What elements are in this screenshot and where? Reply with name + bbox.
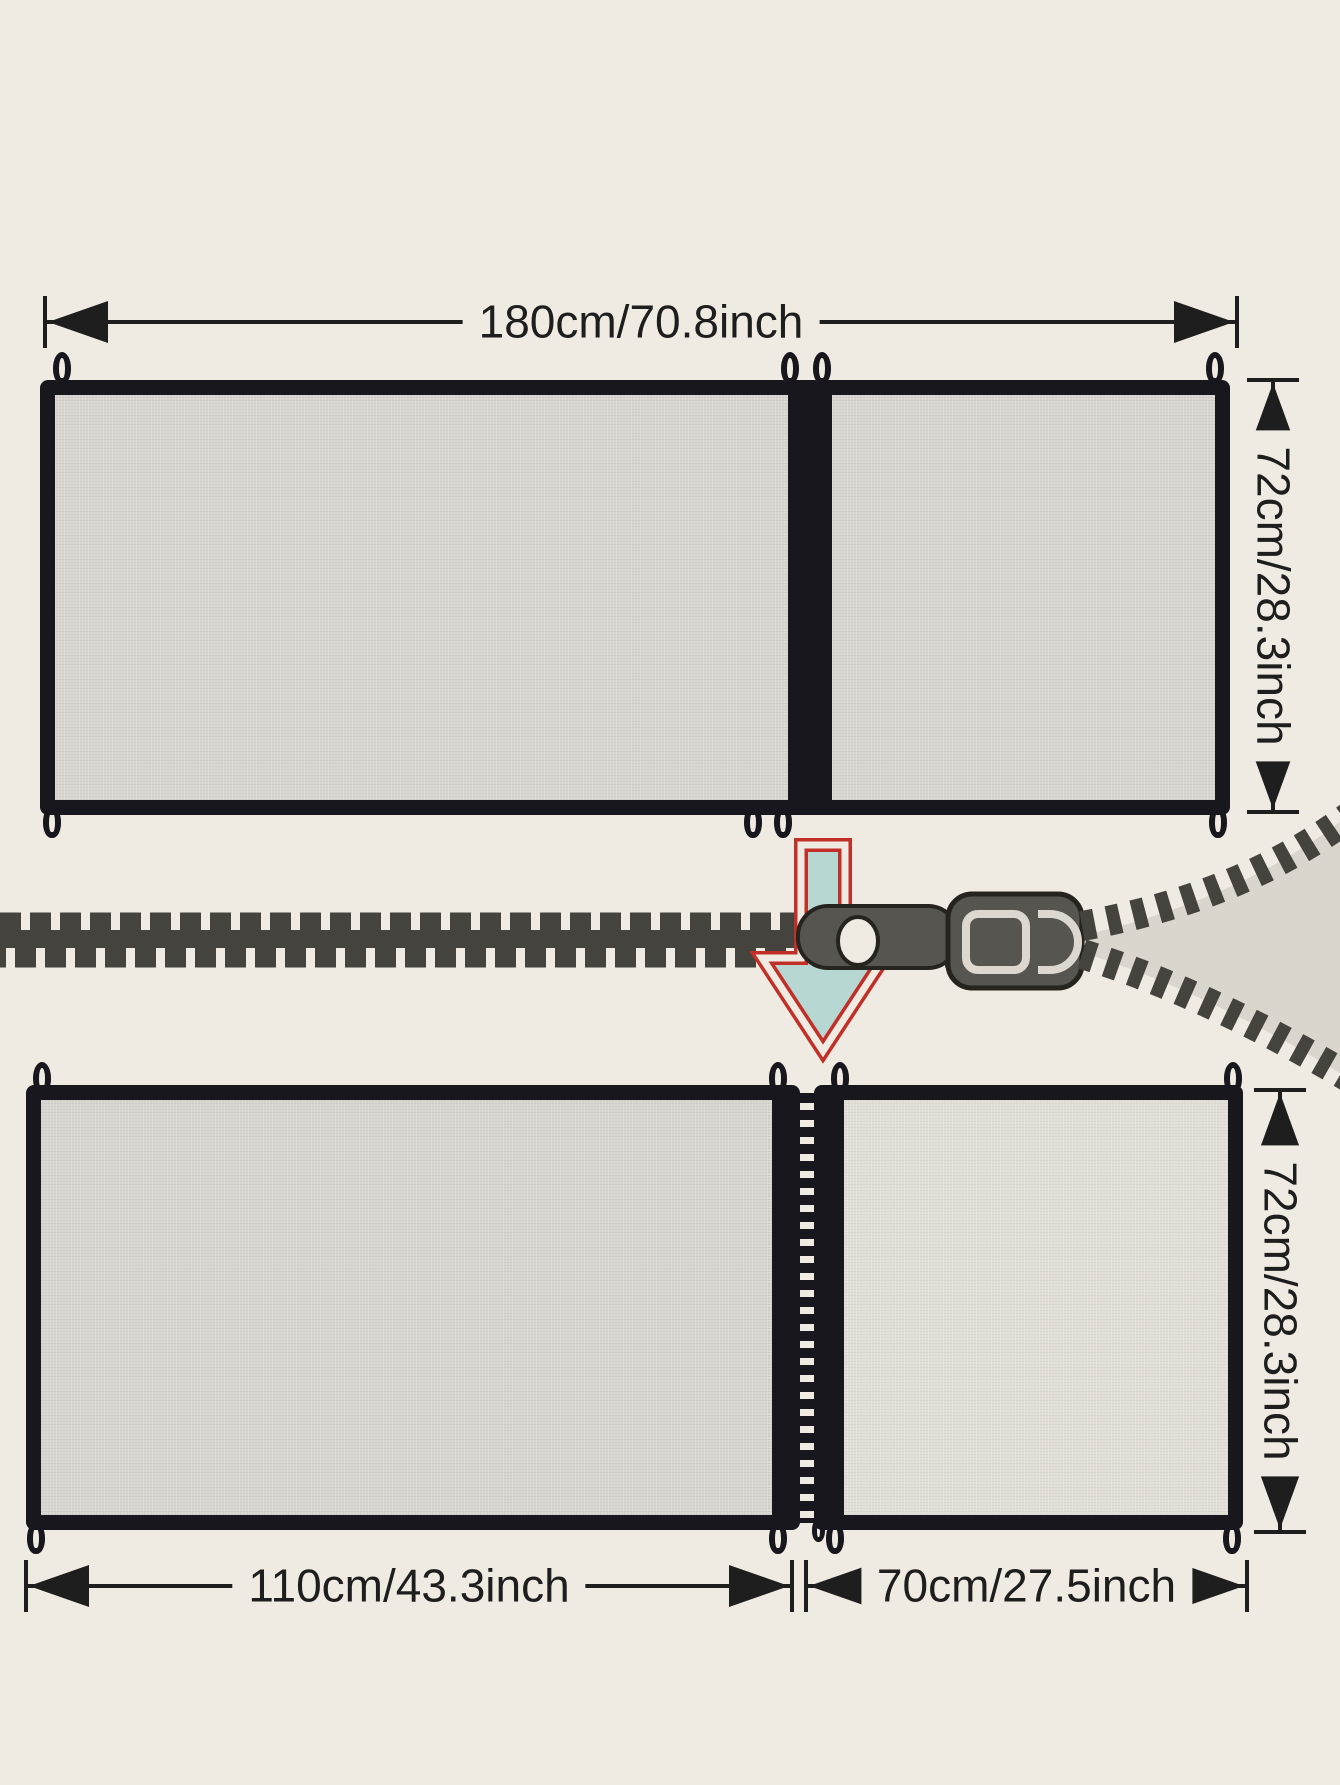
mesh-panel-right bbox=[832, 395, 1215, 800]
zipper-slider-icon bbox=[798, 894, 1082, 988]
arrowhead-right-icon bbox=[729, 1565, 789, 1607]
dimension-tick bbox=[1254, 1530, 1306, 1534]
hanging-loop bbox=[774, 806, 792, 838]
mesh-panel-left bbox=[55, 395, 788, 800]
arrowhead-left-icon bbox=[29, 1565, 89, 1607]
dimension-label-height-top: 72cm/28.3inch bbox=[1246, 430, 1301, 761]
arrowhead-up-icon bbox=[1260, 1093, 1300, 1148]
dimension-label-bottom-left-width: 110cm/43.3inch bbox=[232, 1559, 585, 1614]
arrowhead-right-icon bbox=[1174, 301, 1234, 343]
dimension-tick bbox=[804, 1560, 808, 1612]
hanging-loop bbox=[781, 352, 799, 384]
hanging-loop bbox=[53, 352, 71, 384]
mesh-panel bbox=[844, 1100, 1228, 1515]
dimension-tick bbox=[43, 296, 47, 348]
dimension-tick bbox=[1247, 810, 1299, 814]
mesh-panel bbox=[41, 1100, 772, 1515]
hanging-loop bbox=[27, 1522, 45, 1554]
dimension-tick bbox=[1245, 1560, 1249, 1612]
dimension-label-total-width: 180cm/70.8inch bbox=[463, 295, 820, 350]
down-arrow-icon bbox=[762, 845, 884, 1051]
hanging-loop bbox=[1223, 1522, 1241, 1554]
zipper-teeth-lower bbox=[1082, 954, 1340, 1078]
zipper-junction-closed bbox=[788, 380, 832, 815]
hanging-loop bbox=[33, 1062, 51, 1094]
gate-bottom-left bbox=[26, 1085, 800, 1530]
hanging-loop bbox=[1206, 352, 1224, 384]
hanging-loop bbox=[826, 1522, 844, 1554]
hanging-loop bbox=[831, 1062, 849, 1094]
dimension-tick bbox=[1247, 378, 1299, 382]
product-diagram: 180cm/70.8inch 72cm/28.3inch bbox=[0, 0, 1340, 1785]
zipper-pull-loop bbox=[812, 1518, 825, 1542]
gate-bottom-right bbox=[814, 1085, 1243, 1530]
arrowhead-down-icon bbox=[1260, 1474, 1300, 1529]
hanging-loop bbox=[769, 1522, 787, 1554]
hanging-loop bbox=[43, 806, 61, 838]
zipper-edge-teeth bbox=[806, 1093, 815, 1523]
dimension-tick bbox=[1235, 296, 1239, 348]
gate-top-combined bbox=[40, 380, 1230, 815]
hanging-loop bbox=[1209, 806, 1227, 838]
zipper-teeth-icon bbox=[0, 926, 962, 954]
arrowhead-left-icon bbox=[48, 301, 108, 343]
dimension-label-height-bottom: 72cm/28.3inch bbox=[1253, 1145, 1308, 1476]
arrowhead-down-icon bbox=[1253, 754, 1293, 809]
zipper-tape-wedge bbox=[1080, 818, 1340, 1076]
dimension-tick bbox=[790, 1560, 794, 1612]
hanging-loop bbox=[813, 352, 831, 384]
dimension-label-bottom-right-width: 70cm/27.5inch bbox=[861, 1559, 1192, 1614]
hanging-loop bbox=[744, 806, 762, 838]
hanging-loop bbox=[1224, 1062, 1242, 1094]
dimension-tick bbox=[24, 1560, 28, 1612]
dimension-tick bbox=[1254, 1088, 1306, 1092]
hanging-loop bbox=[769, 1062, 787, 1094]
arrowhead-right-icon bbox=[1184, 1565, 1244, 1607]
